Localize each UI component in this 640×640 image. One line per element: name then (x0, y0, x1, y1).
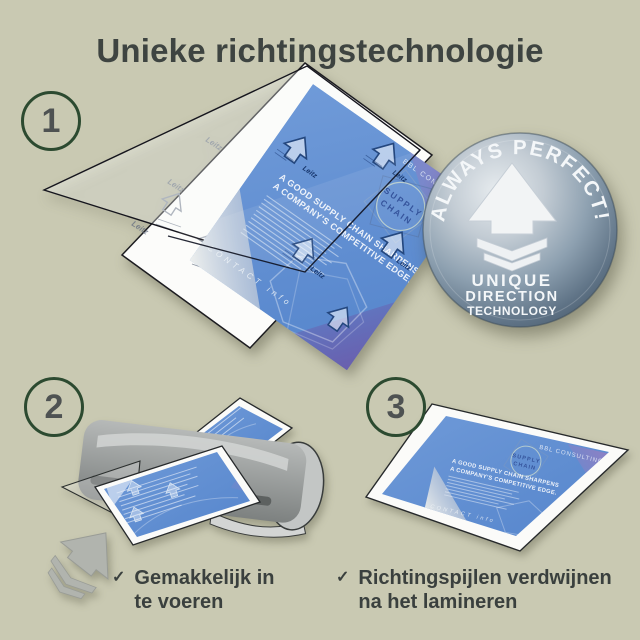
checklist-item-2-text: Richtingspijlen verdwijnen na het lamine… (358, 566, 636, 615)
checkmark-icon: ✓ (112, 566, 125, 588)
checklist-item-2: ✓ Richtingspijlen verdwijnen na het lami… (336, 566, 636, 615)
badge-line-direction: DIRECTION (465, 289, 558, 305)
badge-line-technology: TECHNOLOGY (467, 304, 557, 318)
checkmark-icon: ✓ (336, 566, 349, 588)
badge-line-unique: UNIQUE (471, 271, 552, 290)
checklist-item-1-text: Gemakkelijk in te voeren (134, 566, 292, 615)
pouch-illustration: Leitz Leitz Leitz (44, 63, 476, 375)
laminating-infographic: Unieke richtingstechnologie (0, 0, 640, 640)
checklist-item-1: ✓ Gemakkelijk in te voeren (112, 566, 292, 615)
always-perfect-badge: ALWAYS PERFECT! UNIQUE DIRECTION TECHNOL… (423, 133, 617, 327)
illustrations: Leitz Leitz Leitz (0, 0, 640, 640)
step-2-number: 2 (24, 377, 84, 437)
step-3-number: 3 (366, 377, 426, 437)
step-1-number: 1 (21, 91, 81, 151)
